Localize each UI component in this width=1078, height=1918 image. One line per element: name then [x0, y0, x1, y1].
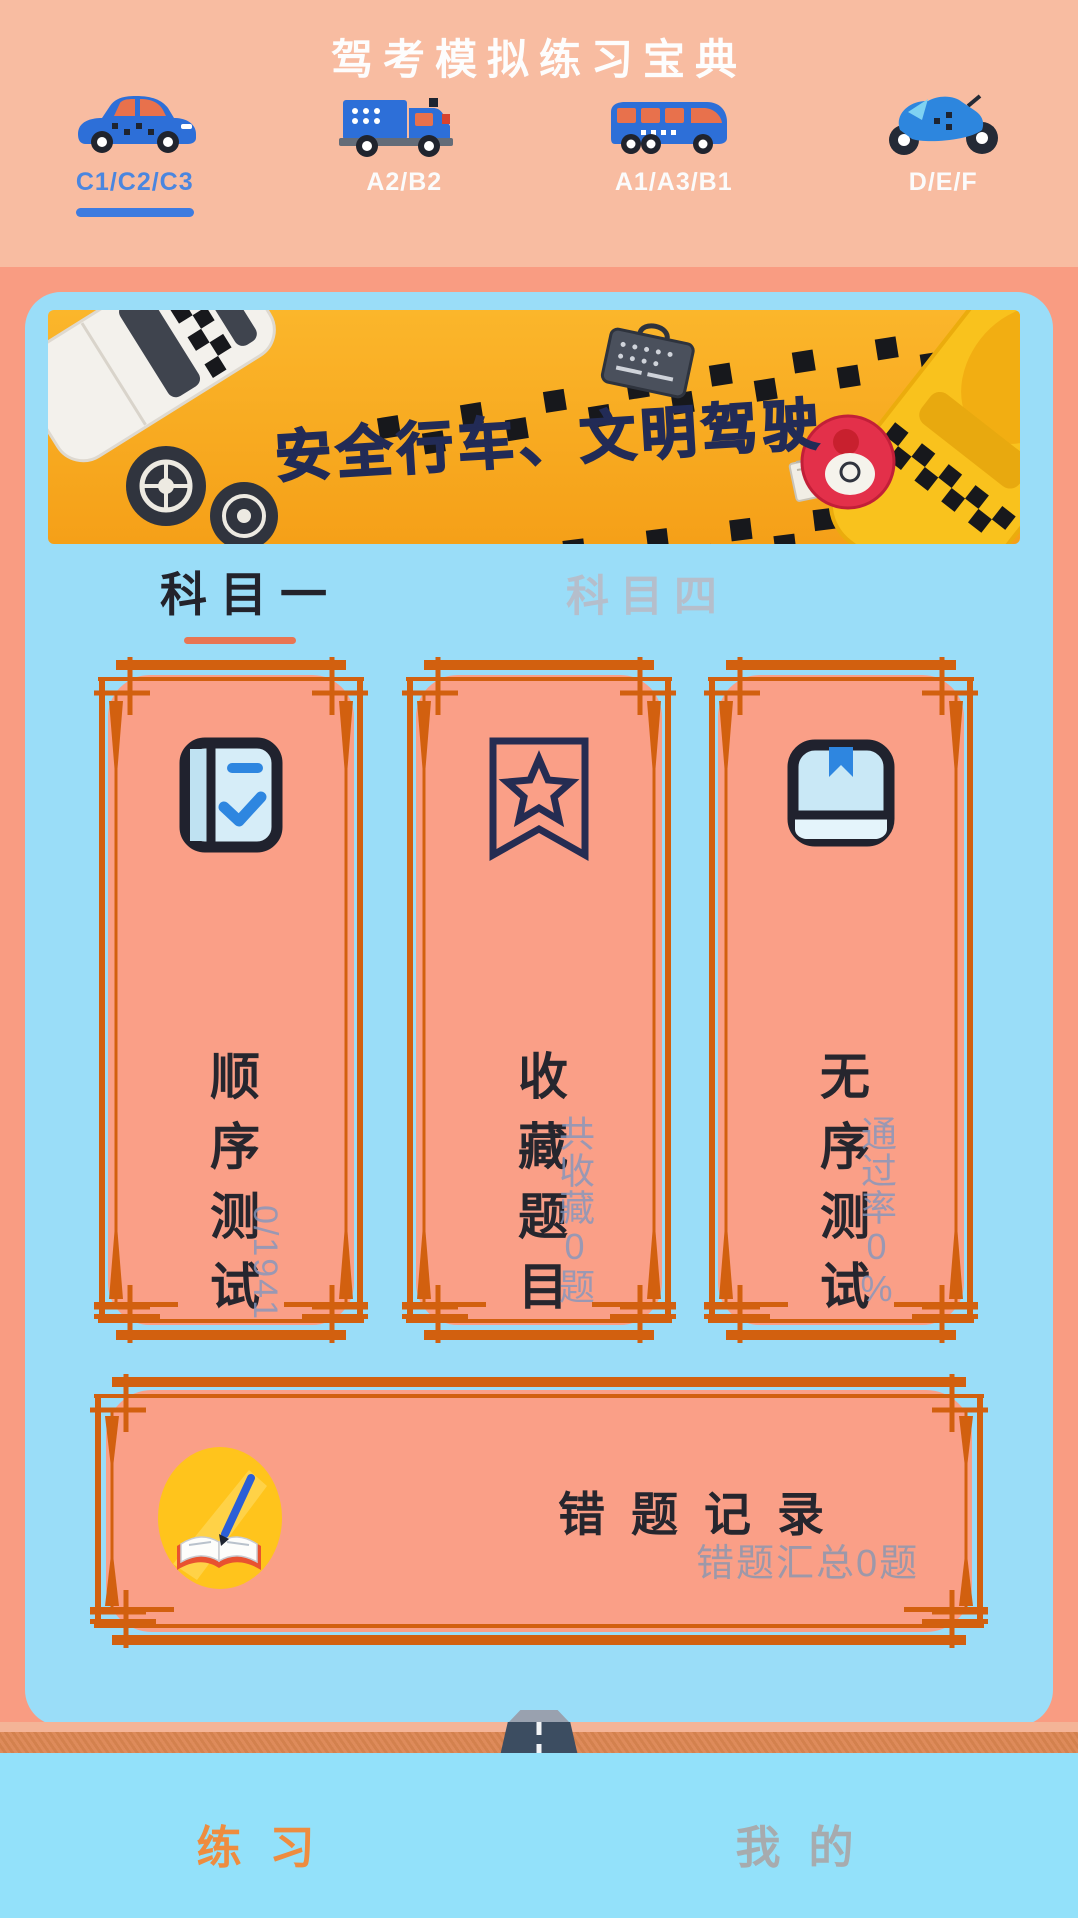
card-stat: 0/1941: [245, 1205, 284, 1321]
truck-icon: [329, 88, 479, 160]
subject-tab-underline: [184, 637, 296, 644]
page-title: 驾考模拟练习宝典: [0, 26, 1078, 87]
road-center-line: [537, 1722, 542, 1756]
nav-item-mine[interactable]: 我的: [539, 1753, 1078, 1918]
header: 驾考模拟练习宝典 C1/C2/C3: [0, 0, 1078, 267]
car-icon: [60, 88, 210, 160]
promo-banner[interactable]: 安全行车、文明驾驶: [48, 310, 1020, 544]
tab-def[interactable]: D/E/F: [809, 88, 1078, 217]
subject-1-label: 科目一: [160, 556, 340, 625]
category-label: A2/B2: [366, 168, 442, 197]
bookmark-star-icon: [476, 733, 602, 865]
card-favorite-questions[interactable]: 收藏题目 共收藏0题: [400, 655, 678, 1345]
subject-4-label: 科目四: [566, 562, 728, 624]
tab-subject-4[interactable]: 科目四: [566, 562, 728, 624]
card-sequential-test[interactable]: 顺序测试 0/1941: [92, 655, 370, 1345]
book-check-icon: [169, 733, 293, 857]
card-random-test[interactable]: 无序测试 通过率0%: [702, 655, 980, 1345]
tab-c1c2c3[interactable]: C1/C2/C3: [0, 88, 270, 217]
notebook-pencil-icon: [155, 1442, 285, 1592]
category-label: A1/A3/B1: [615, 168, 733, 197]
category-label: C1/C2/C3: [76, 168, 194, 197]
nav-item-practice[interactable]: 练习: [0, 1753, 539, 1918]
bus-icon: [599, 88, 749, 160]
card-wrong-answer-record[interactable]: 错题记录 错题汇总0题: [88, 1372, 990, 1650]
tab-subject-1[interactable]: 科目一: [160, 556, 340, 644]
category-label: D/E/F: [909, 168, 978, 197]
tab-a1a3b1[interactable]: A1/A3/B1: [539, 88, 809, 217]
card-stat: 通过率0%: [850, 1115, 902, 1310]
card-stat: 错题汇总0题: [696, 1532, 919, 1587]
vehicle-category-tabs: C1/C2/C3 A2/B2: [0, 88, 1078, 217]
tab-a2b2[interactable]: A2/B2: [270, 88, 540, 217]
road-icon: [500, 1722, 578, 1756]
app-screen: 驾考模拟练习宝典 C1/C2/C3: [0, 0, 1078, 1918]
card-stat: 共收藏0题: [548, 1115, 600, 1305]
bottom-nav: 练习 我的: [0, 1753, 1078, 1918]
active-tab-underline: [76, 208, 194, 217]
motorcycle-icon: [868, 88, 1018, 160]
book-ribbon-icon: [781, 733, 901, 853]
